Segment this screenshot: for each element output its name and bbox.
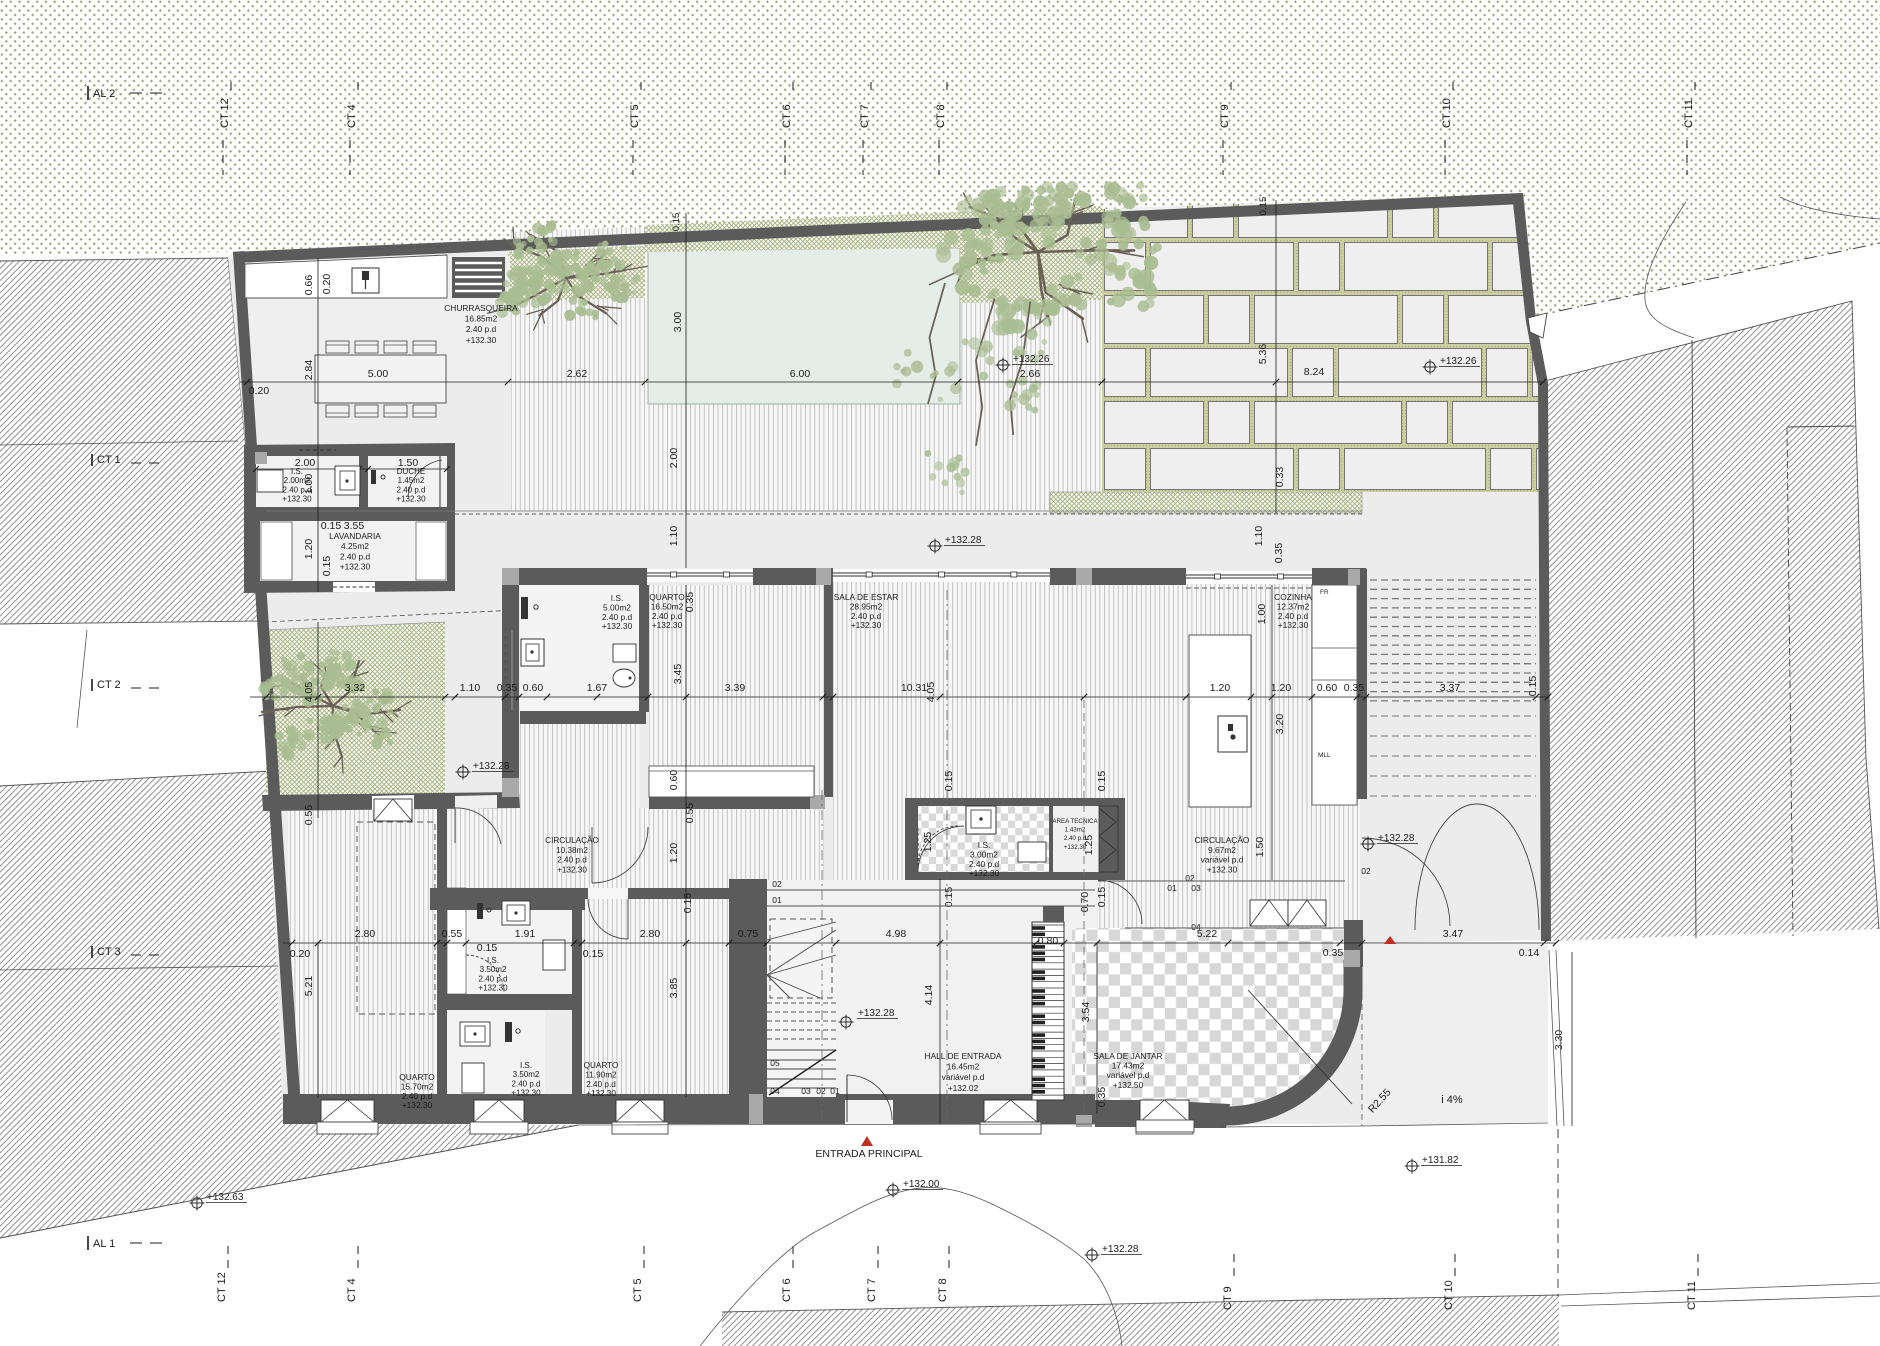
svg-text:02: 02: [1361, 866, 1371, 876]
svg-text:5.36: 5.36: [1257, 344, 1269, 365]
svg-text:2.40 p.d: 2.40 p.d: [512, 1079, 541, 1088]
svg-text:MLL: MLL: [1318, 752, 1331, 759]
svg-text:0.60: 0.60: [523, 682, 544, 694]
svg-text:03: 03: [801, 1086, 811, 1096]
svg-text:+132.30: +132.30: [1207, 864, 1238, 874]
svg-text:1.20: 1.20: [303, 539, 315, 560]
svg-text:CT 4: CT 4: [346, 104, 358, 128]
svg-text:16.45m2: 16.45m2: [947, 1062, 980, 1072]
svg-text:1.91: 1.91: [515, 928, 536, 940]
svg-text:3.54: 3.54: [1080, 1002, 1092, 1023]
svg-text:CT 9: CT 9: [1219, 104, 1231, 128]
svg-text:SALA DE JANTAR: SALA DE JANTAR: [1093, 1051, 1162, 1061]
svg-text:3.47: 3.47: [1443, 928, 1464, 940]
svg-text:CHURRASQUEIRA: CHURRASQUEIRA: [444, 303, 518, 313]
svg-text:CT 11: CT 11: [1686, 1281, 1698, 1310]
svg-text:0.70: 0.70: [1079, 892, 1091, 913]
svg-text:3.32: 3.32: [345, 682, 366, 694]
svg-text:0.15: 0.15: [943, 771, 955, 792]
svg-text:CT 5: CT 5: [632, 1278, 644, 1302]
svg-text:2.40 p.d: 2.40 p.d: [1064, 835, 1087, 842]
svg-text:3.00: 3.00: [672, 312, 684, 333]
svg-text:+132.30: +132.30: [1064, 844, 1087, 851]
svg-text:CT 6: CT 6: [781, 1278, 793, 1302]
svg-text:2.80: 2.80: [355, 928, 376, 940]
svg-text:LAVANDARIA: LAVANDARIA: [329, 531, 381, 541]
svg-text:DUCHE: DUCHE: [397, 467, 425, 476]
svg-text:3.39: 3.39: [725, 682, 746, 694]
svg-text:10.31: 10.31: [901, 682, 927, 694]
svg-text:I.S.: I.S.: [291, 467, 303, 476]
svg-text:+132.30: +132.30: [602, 621, 633, 631]
svg-text:variável p.d: variável p.d: [1201, 855, 1244, 865]
svg-text:05: 05: [770, 1058, 780, 1068]
svg-text:+132.30: +132.30: [396, 495, 426, 504]
svg-text:0.15: 0.15: [477, 942, 498, 954]
svg-text:1.20: 1.20: [668, 843, 680, 864]
svg-text:0.33: 0.33: [1274, 467, 1286, 488]
svg-text:01: 01: [1167, 883, 1177, 893]
svg-text:2.84: 2.84: [303, 360, 315, 381]
svg-text:4.25m2: 4.25m2: [341, 541, 369, 551]
svg-text:+132.30: +132.30: [511, 1089, 541, 1098]
svg-text:CT 10: CT 10: [1443, 1280, 1455, 1310]
svg-text:2.00: 2.00: [668, 448, 680, 469]
svg-text:2.66: 2.66: [1020, 368, 1041, 380]
svg-text:+131.82: +131.82: [1422, 1155, 1459, 1166]
svg-text:0.15: 0.15: [1096, 771, 1108, 792]
svg-text:CT 8: CT 8: [935, 104, 947, 128]
svg-text:+132.30: +132.30: [851, 620, 882, 630]
svg-text:03: 03: [1191, 883, 1201, 893]
svg-text:1.20: 1.20: [1271, 682, 1292, 694]
svg-text:+132.00: +132.00: [903, 1179, 940, 1190]
svg-text:1.45m2: 1.45m2: [398, 476, 425, 485]
svg-text:CT 7: CT 7: [859, 104, 871, 128]
svg-text:CT 3: CT 3: [97, 946, 121, 958]
svg-text:I.S.: I.S.: [520, 1061, 532, 1070]
svg-text:CT 7: CT 7: [866, 1278, 878, 1302]
svg-text:+132.30: +132.30: [652, 620, 683, 630]
svg-text:3.37: 3.37: [1440, 682, 1461, 694]
svg-text:4.14: 4.14: [923, 985, 935, 1006]
svg-text:CT 10: CT 10: [1441, 98, 1453, 128]
svg-text:0.20: 0.20: [321, 274, 333, 295]
svg-text:0.15: 0.15: [671, 213, 682, 232]
svg-text:1.00: 1.00: [1256, 604, 1268, 625]
svg-text:01: 01: [830, 1086, 840, 1096]
svg-text:+132.30: +132.30: [340, 562, 371, 572]
svg-text:CT 4: CT 4: [346, 1278, 358, 1302]
svg-text:FR: FR: [1320, 589, 1329, 596]
svg-text:0.35: 0.35: [1273, 543, 1285, 564]
svg-text:2.62: 2.62: [567, 368, 588, 380]
svg-text:2.40 p.d: 2.40 p.d: [466, 324, 497, 334]
svg-text:+132.30: +132.30: [969, 868, 1000, 878]
svg-text:CT 12: CT 12: [216, 1272, 228, 1302]
svg-text:0.15: 0.15: [1096, 887, 1108, 908]
svg-text:9.67m2: 9.67m2: [1208, 845, 1236, 855]
svg-text:CT 1: CT 1: [97, 454, 121, 466]
svg-text:0.15: 0.15: [1258, 197, 1269, 216]
svg-text:5.21: 5.21: [303, 976, 315, 997]
svg-text:CT 5: CT 5: [629, 104, 641, 128]
svg-text:+132.30: +132.30: [402, 1100, 433, 1110]
svg-text:+132.28: +132.28: [858, 1008, 895, 1019]
svg-text:0.35: 0.35: [497, 682, 518, 694]
svg-text:+132.30: +132.30: [282, 495, 312, 504]
svg-text:0.15: 0.15: [682, 893, 694, 914]
svg-text:1.10: 1.10: [1253, 526, 1265, 547]
svg-text:0.35: 0.35: [1344, 682, 1365, 694]
svg-text:0.60: 0.60: [1317, 682, 1338, 694]
svg-text:i 4%: i 4%: [1441, 1094, 1463, 1106]
svg-text:I.S.: I.S.: [487, 956, 499, 965]
svg-text:CIRCULAÇÃO: CIRCULAÇÃO: [545, 835, 599, 845]
svg-text:+132.28: +132.28: [1378, 833, 1415, 844]
svg-text:+132.30: +132.30: [557, 865, 587, 874]
svg-text:+132.26: +132.26: [1440, 356, 1477, 367]
svg-text:0.55: 0.55: [684, 803, 696, 824]
svg-text:ENTRADA PRINCIPAL: ENTRADA PRINCIPAL: [815, 1148, 922, 1160]
svg-text:01: 01: [772, 895, 782, 905]
svg-text:AREA TECNICA: AREA TECNICA: [1052, 818, 1098, 825]
svg-text:1.20: 1.20: [1210, 682, 1231, 694]
svg-text:4.05: 4.05: [303, 682, 315, 703]
svg-text:1.43m2: 1.43m2: [1065, 827, 1086, 834]
svg-text:CIRCULAÇÃO: CIRCULAÇÃO: [1195, 835, 1250, 845]
svg-text:16.85m2: 16.85m2: [465, 314, 498, 324]
svg-text:02: 02: [772, 879, 782, 889]
svg-text:0.20: 0.20: [249, 385, 270, 397]
svg-text:AL 2: AL 2: [93, 88, 115, 100]
svg-text:02: 02: [816, 1086, 826, 1096]
svg-text:2.40 p.d: 2.40 p.d: [479, 974, 508, 983]
svg-text:variável p.d: variável p.d: [942, 1072, 985, 1082]
svg-text:2.40 p.d: 2.40 p.d: [397, 485, 426, 494]
svg-text:0.55: 0.55: [303, 805, 315, 826]
svg-text:17.43m2: 17.43m2: [1112, 1061, 1145, 1071]
svg-text:11.90m2: 11.90m2: [585, 1070, 617, 1079]
svg-text:0.35: 0.35: [1096, 1087, 1108, 1108]
svg-text:8.24: 8.24: [1304, 366, 1325, 378]
svg-text:CT 12: CT 12: [219, 98, 231, 128]
svg-text:4.05: 4.05: [925, 682, 937, 703]
svg-text:0.15: 0.15: [1527, 676, 1539, 697]
svg-text:0.20: 0.20: [290, 948, 311, 960]
svg-text:+132.26: +132.26: [1013, 354, 1050, 365]
svg-text:0.60: 0.60: [668, 770, 680, 791]
svg-text:0.55: 0.55: [442, 928, 463, 940]
svg-text:+132.30: +132.30: [478, 984, 508, 993]
svg-text:0.80: 0.80: [1038, 935, 1059, 947]
svg-text:2.40 p.d: 2.40 p.d: [586, 1080, 616, 1089]
svg-text:3.50m2: 3.50m2: [513, 1070, 540, 1079]
svg-text:1.50: 1.50: [1254, 837, 1266, 858]
svg-text:1.25: 1.25: [922, 832, 934, 853]
svg-text:3.50m2: 3.50m2: [480, 965, 507, 974]
svg-text:0.35: 0.35: [684, 592, 696, 613]
svg-text:CT 2: CT 2: [97, 679, 121, 691]
svg-text:5.00: 5.00: [368, 368, 389, 380]
svg-text:2.40 p.d: 2.40 p.d: [340, 551, 371, 561]
svg-text:0.14: 0.14: [1519, 947, 1540, 959]
svg-text:2.80: 2.80: [640, 928, 661, 940]
svg-text:3.45: 3.45: [672, 664, 684, 685]
svg-text:0.75: 0.75: [738, 928, 759, 940]
svg-text:+132.28: +132.28: [473, 761, 510, 772]
svg-text:+132.30: +132.30: [1278, 620, 1309, 630]
svg-text:+132.02: +132.02: [948, 1083, 979, 1093]
svg-text:02: 02: [1185, 873, 1195, 883]
svg-text:+132.50: +132.50: [1113, 1080, 1144, 1090]
svg-text:CT 8: CT 8: [937, 1278, 949, 1302]
svg-text:+132.30: +132.30: [466, 335, 497, 345]
svg-text:variável p.d: variável p.d: [1107, 1070, 1150, 1080]
svg-text:+132.28: +132.28: [945, 535, 982, 546]
svg-text:2.40 p.d: 2.40 p.d: [557, 856, 587, 865]
svg-text:0.35: 0.35: [1323, 947, 1344, 959]
svg-text:HALL DE ENTRADA: HALL DE ENTRADA: [925, 1051, 1002, 1061]
svg-text:04: 04: [770, 1086, 780, 1096]
svg-text:CT 9: CT 9: [1222, 1286, 1234, 1310]
svg-text:0.15: 0.15: [321, 556, 333, 577]
svg-text:10.38m2: 10.38m2: [556, 846, 588, 855]
svg-text:+132.30: +132.30: [586, 1089, 616, 1098]
svg-text:2.00m2: 2.00m2: [284, 476, 311, 485]
svg-text:0.15: 0.15: [583, 948, 604, 960]
svg-text:1.10: 1.10: [460, 682, 481, 694]
svg-text:+132.28: +132.28: [1102, 1244, 1139, 1255]
svg-text:3.20: 3.20: [1274, 714, 1286, 735]
svg-text:AL 1: AL 1: [93, 1238, 115, 1250]
svg-text:3.30: 3.30: [1553, 1030, 1565, 1051]
svg-text:6.00: 6.00: [790, 368, 811, 380]
svg-text:04: 04: [1191, 922, 1201, 932]
svg-text:3.85: 3.85: [668, 978, 680, 999]
svg-text:4.98: 4.98: [886, 928, 907, 940]
svg-text:QUARTO: QUARTO: [584, 1061, 619, 1070]
svg-text:1.67: 1.67: [587, 682, 608, 694]
svg-text:0.66: 0.66: [303, 275, 315, 296]
svg-text:CT 11: CT 11: [1683, 99, 1695, 128]
svg-text:2.40 p.d: 2.40 p.d: [283, 485, 312, 494]
svg-text:1.10: 1.10: [668, 526, 680, 547]
svg-text:CT 6: CT 6: [781, 104, 793, 128]
